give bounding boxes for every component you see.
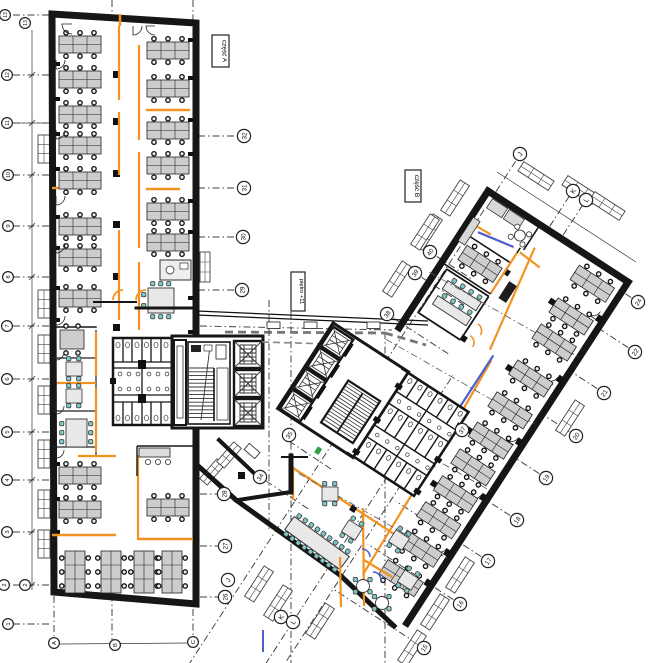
svg-text:13: 13: [23, 20, 29, 26]
svg-text:9: 9: [6, 224, 12, 227]
svg-text:część A: część A: [221, 40, 228, 63]
svg-text:5: 5: [5, 430, 11, 433]
svg-text:29: 29: [239, 286, 246, 294]
svg-text:27: 27: [222, 542, 229, 550]
svg-text:11: 11: [5, 120, 11, 125]
svg-text:piętro +11: piętro +11: [298, 279, 304, 305]
svg-text:32: 32: [241, 132, 248, 140]
svg-text:7: 7: [5, 324, 11, 327]
svg-text:B: B: [113, 643, 119, 647]
svg-text:6: 6: [5, 377, 11, 380]
svg-text:2: 2: [23, 583, 29, 586]
svg-text:1: 1: [6, 622, 12, 625]
svg-text:10: 10: [6, 172, 12, 178]
svg-text:2: 2: [2, 583, 8, 586]
svg-text:część B: część B: [413, 175, 420, 197]
svg-text:30: 30: [240, 233, 247, 241]
svg-text:3: 3: [5, 530, 11, 533]
svg-text:12: 12: [5, 72, 11, 78]
svg-text:26: 26: [222, 593, 229, 601]
svg-text:31: 31: [241, 184, 248, 192]
svg-text:28: 28: [221, 490, 228, 498]
svg-text:8: 8: [6, 275, 12, 278]
svg-text:A: A: [52, 641, 58, 645]
svg-text:13: 13: [3, 12, 9, 18]
svg-text:C: C: [191, 640, 197, 644]
